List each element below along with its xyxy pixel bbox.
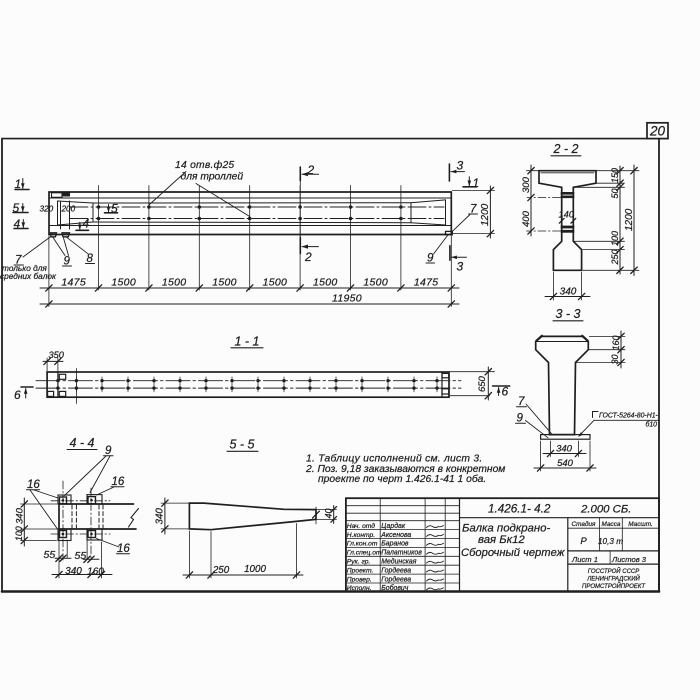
svg-text:Палатников: Палатников xyxy=(381,550,422,557)
svg-text:1500: 1500 xyxy=(212,277,237,289)
svg-text:проекте по черт 1.426.1-41: проекте по черт 1.426.1-41 1 обa. xyxy=(318,473,486,485)
svg-text:1: 1 xyxy=(473,176,480,190)
svg-text:3 - 3: 3 - 3 xyxy=(555,307,580,321)
svg-text:Стадия: Стадия xyxy=(572,520,597,528)
svg-text:350: 350 xyxy=(49,350,65,360)
svg-text:Проект.: Проект. xyxy=(347,567,374,574)
svg-text:Масшт.: Масшт. xyxy=(628,521,652,528)
svg-text:160: 160 xyxy=(611,335,621,350)
svg-text:340: 340 xyxy=(65,566,82,577)
svg-text:4 - 4: 4 - 4 xyxy=(69,436,94,450)
svg-text:300: 300 xyxy=(521,176,532,193)
svg-text:ЛЕНИНГРАДСКИЙ: ЛЕНИНГРАДСКИЙ xyxy=(586,575,640,583)
svg-text:1.426.1- 4.2: 1.426.1- 4.2 xyxy=(488,503,551,516)
svg-text:Мединская: Мединская xyxy=(381,558,416,566)
svg-text:2: 2 xyxy=(304,250,312,264)
svg-text:140: 140 xyxy=(559,210,575,220)
svg-text:4: 4 xyxy=(83,217,90,231)
svg-text:Р: Р xyxy=(580,536,587,547)
svg-text:1200: 1200 xyxy=(480,203,491,226)
svg-text:Бобович: Бобович xyxy=(381,584,408,592)
svg-text:ГОССТРОЙ СССР: ГОССТРОЙ СССР xyxy=(588,567,640,575)
svg-text:Балка подкрано-: Балка подкрано- xyxy=(462,523,550,535)
svg-text:2.000 СБ.: 2.000 СБ. xyxy=(580,504,631,516)
svg-text:1 - 1: 1 - 1 xyxy=(234,335,259,349)
svg-text:ГОСТ-5264-80-Н1-: ГОСТ-5264-80-Н1- xyxy=(599,413,659,420)
svg-text:6: 6 xyxy=(14,388,21,402)
svg-text:10,3 т: 10,3 т xyxy=(598,537,623,546)
svg-text:для троллей: для троллей xyxy=(181,172,244,183)
svg-text:200: 200 xyxy=(61,205,76,214)
svg-text:1500: 1500 xyxy=(162,277,187,289)
svg-text:Аксенова: Аксенова xyxy=(380,532,411,539)
svg-text:340: 340 xyxy=(155,508,166,525)
svg-text:150: 150 xyxy=(610,168,620,183)
svg-text:ПРОМСТРОЙПРОЕКТ: ПРОМСТРОЙПРОЕКТ xyxy=(582,582,646,590)
svg-text:б10: б10 xyxy=(645,420,657,428)
svg-text:14 отв.ф25: 14 отв.ф25 xyxy=(175,159,234,171)
svg-text:вая Бк12: вая Бк12 xyxy=(478,534,525,546)
svg-text:100: 100 xyxy=(14,526,24,541)
svg-text:20: 20 xyxy=(649,124,666,139)
svg-text:1. Таблицу исполнений см. лис: 1. Таблицу исполнений см. лист 3. xyxy=(306,453,482,465)
svg-text:5 - 5: 5 - 5 xyxy=(229,438,254,452)
svg-text:40: 40 xyxy=(324,508,334,518)
svg-text:540: 540 xyxy=(557,458,574,469)
svg-text:Провер.: Провер. xyxy=(347,576,372,583)
svg-text:Н.контр.: Н.контр. xyxy=(347,532,375,539)
svg-text:160: 160 xyxy=(87,567,104,578)
svg-text:340: 340 xyxy=(556,444,573,455)
svg-text:Рук. гр.: Рук. гр. xyxy=(347,559,371,566)
svg-text:55: 55 xyxy=(44,549,56,561)
svg-text:1200: 1200 xyxy=(624,208,635,231)
svg-text:11950: 11950 xyxy=(332,293,362,305)
svg-text:Баранов: Баранов xyxy=(381,541,409,548)
svg-text:3: 3 xyxy=(457,260,464,274)
svg-text:2 - 2: 2 - 2 xyxy=(552,142,578,156)
svg-text:1500: 1500 xyxy=(313,277,338,289)
svg-text:Гл.спец.от: Гл.спец.от xyxy=(347,550,382,557)
svg-text:55: 55 xyxy=(75,550,87,562)
svg-text:Масса: Масса xyxy=(602,521,621,528)
svg-text:1500: 1500 xyxy=(263,277,288,289)
svg-text:Гл.кон.от: Гл.кон.от xyxy=(347,541,378,548)
svg-text:Гордеева: Гордеева xyxy=(381,575,411,583)
svg-text:Сборочный чертеж: Сборочный чертеж xyxy=(461,547,566,559)
svg-text:250: 250 xyxy=(610,249,620,265)
svg-text:340: 340 xyxy=(560,287,577,298)
svg-text:100: 100 xyxy=(610,231,620,246)
svg-text:650: 650 xyxy=(477,375,488,392)
svg-text:1500: 1500 xyxy=(111,277,136,289)
svg-text:Гордеева: Гордеева xyxy=(381,566,411,574)
svg-text:320: 320 xyxy=(40,205,54,214)
svg-text:Исполн.: Исполн. xyxy=(347,585,372,592)
svg-text:1475: 1475 xyxy=(414,277,439,289)
svg-text:30: 30 xyxy=(610,354,620,364)
svg-text:средних балок: средних балок xyxy=(0,271,57,281)
svg-text:400: 400 xyxy=(521,210,532,227)
svg-text:340: 340 xyxy=(14,507,25,524)
svg-text:Листов 3: Листов 3 xyxy=(611,555,647,564)
svg-text:1000: 1000 xyxy=(244,564,266,575)
svg-text:250: 250 xyxy=(212,565,230,576)
svg-text:Нач. отд: Нач. отд xyxy=(347,522,375,530)
svg-text:1475: 1475 xyxy=(61,277,86,289)
svg-text:3: 3 xyxy=(457,159,464,173)
svg-text:Цардак: Цардак xyxy=(381,522,406,530)
svg-text:Лист 1: Лист 1 xyxy=(571,555,598,564)
svg-text:50: 50 xyxy=(610,188,620,198)
svg-text:1500: 1500 xyxy=(363,277,388,289)
